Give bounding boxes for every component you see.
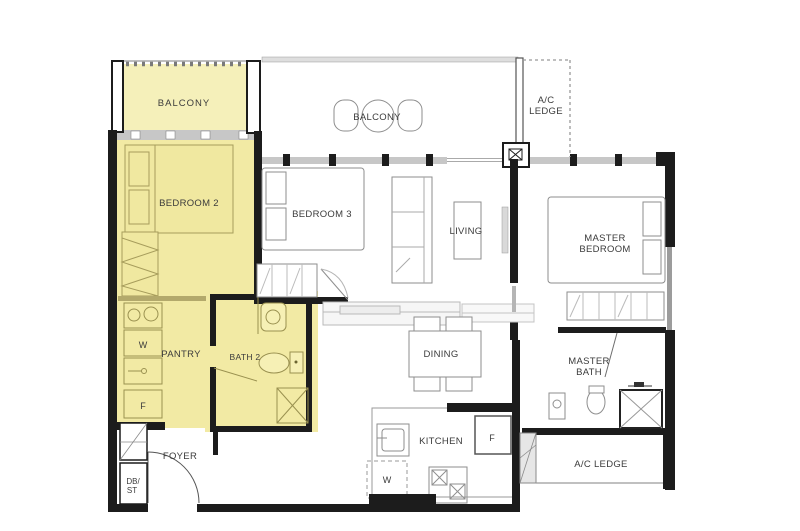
bedroom2-wardrobe [122, 232, 158, 296]
kitchen-fridge-label: F [489, 433, 495, 443]
master-wardrobe [567, 292, 664, 320]
room-label-ac-ledge-top-line2: LEDGE [529, 106, 563, 117]
room-label-kitchen: KITCHEN [419, 436, 463, 447]
room-label-foyer: FOYER [163, 451, 197, 462]
room-label-dining: DINING [423, 349, 458, 360]
bedroom3-wardrobe [257, 264, 317, 297]
bedroom2-bed [125, 145, 233, 233]
pantry-fridge-label: F [140, 401, 146, 411]
room-label-master-bath-line1: MASTER [568, 356, 609, 367]
room-label-db-line1: DB/ [126, 477, 140, 486]
room-label-ac-ledge-top-line1: A/C [538, 95, 555, 106]
room-label-living: LIVING [450, 226, 483, 237]
floor-plan-drawing: BALCONY BEDROOM 2 BALCONY A/C LEDGE BEDR… [0, 0, 800, 531]
kitchen-fixtures [367, 408, 512, 505]
living-sofa [392, 177, 432, 283]
room-label-master-bath-line2: BATH [576, 367, 602, 378]
room-label-ac-ledge-bottom: A/C LEDGE [574, 459, 627, 470]
master-bath-fixtures [549, 333, 662, 428]
room-label-bedroom-2: BEDROOM 2 [159, 198, 219, 209]
pantry-washer-label: W [139, 340, 148, 350]
room-label-master-bedroom-line1: MASTER [584, 233, 625, 244]
room-label-master-bedroom-line2: BEDROOM [579, 244, 630, 255]
room-label-balcony-top: BALCONY [158, 98, 210, 109]
master-door-panel [512, 286, 516, 312]
room-label-db-line2: ST [127, 486, 137, 495]
kitchen-washer-label: W [383, 475, 392, 485]
floor-plan: BALCONY BEDROOM 2 BALCONY A/C LEDGE BEDR… [0, 0, 800, 531]
pantry-highlight [112, 300, 207, 428]
room-label-balcony-mid: BALCONY [353, 112, 401, 123]
room-label-pantry: PANTRY [161, 349, 201, 360]
room-label-bedroom-3: BEDROOM 3 [292, 209, 352, 220]
bedroom3-door [321, 269, 348, 300]
room-label-bath-2: BATH 2 [230, 352, 261, 362]
living-side-shelf [502, 207, 508, 253]
